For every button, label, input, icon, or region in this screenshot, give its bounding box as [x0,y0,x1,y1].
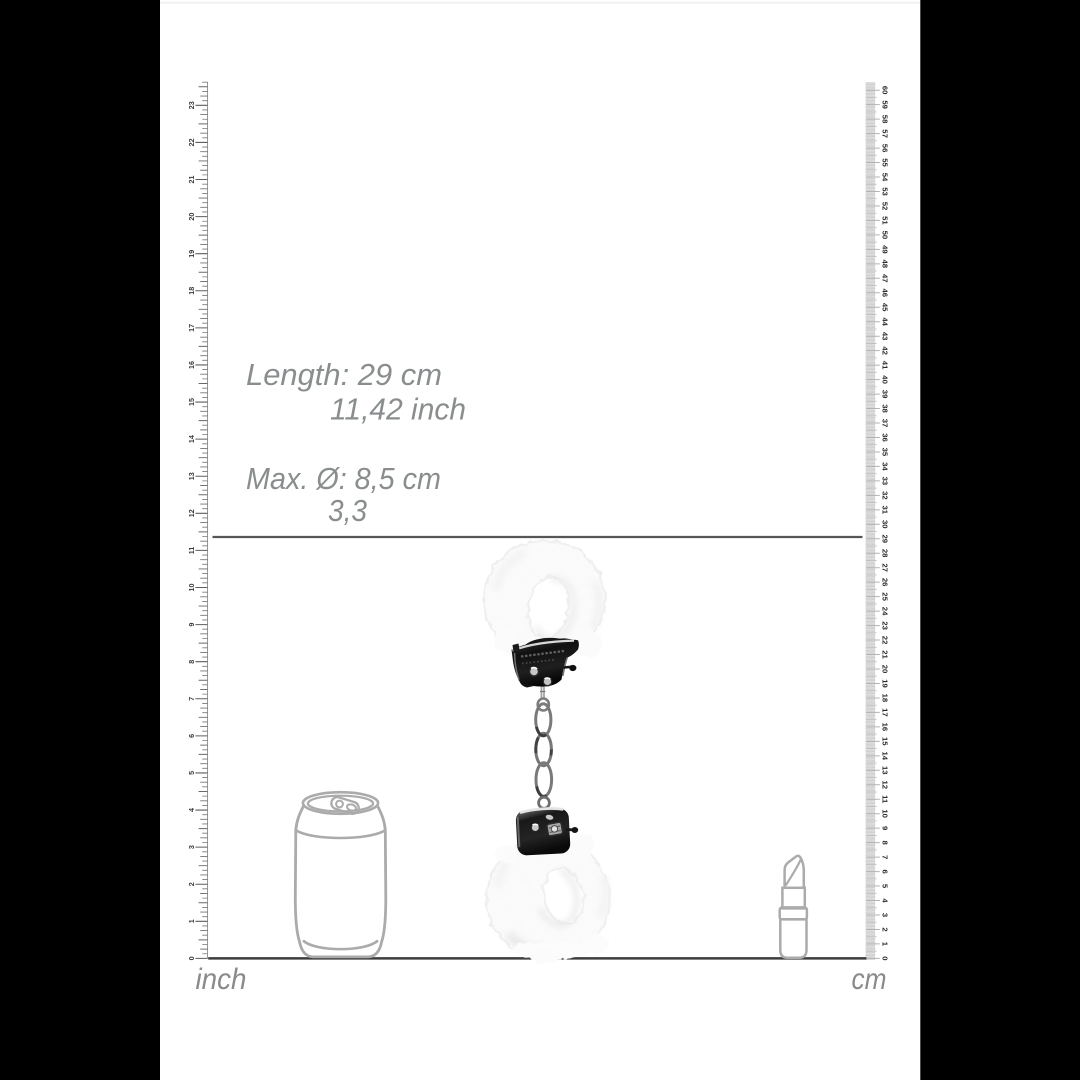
svg-text:17: 17 [880,708,889,717]
svg-text:35: 35 [880,448,889,457]
svg-text:30: 30 [880,520,889,529]
svg-text:56: 56 [880,144,889,153]
svg-text:8: 8 [187,660,196,664]
svg-text:0: 0 [880,956,889,960]
svg-text:20: 20 [880,665,889,674]
svg-text:36: 36 [880,433,889,442]
svg-text:31: 31 [880,506,889,515]
svg-text:41: 41 [880,361,889,370]
svg-text:11: 11 [880,795,889,804]
svg-text:16: 16 [187,361,196,369]
svg-text:47: 47 [880,274,889,283]
svg-text:7: 7 [187,697,196,701]
svg-text:15: 15 [187,398,196,406]
svg-text:23: 23 [880,621,889,630]
svg-text:21: 21 [187,176,196,184]
svg-text:1: 1 [880,942,889,947]
svg-text:58: 58 [880,115,889,124]
svg-text:12: 12 [187,509,196,517]
svg-text:3,3: 3,3 [328,494,367,528]
svg-text:10: 10 [187,584,196,592]
svg-text:19: 19 [880,679,889,688]
svg-text:23: 23 [187,101,196,109]
svg-text:11: 11 [187,547,196,555]
svg-text:22: 22 [187,138,196,146]
svg-text:60: 60 [880,86,889,95]
svg-text:37: 37 [880,419,889,428]
svg-text:32: 32 [880,491,889,500]
svg-text:25: 25 [880,592,889,601]
svg-text:52: 52 [880,202,889,211]
svg-text:Length: 29 cm: Length: 29 cm [246,358,442,392]
svg-text:44: 44 [880,317,889,326]
svg-text:13: 13 [880,766,889,775]
svg-text:21: 21 [880,650,889,659]
svg-text:16: 16 [880,723,889,732]
svg-text:2: 2 [187,882,196,886]
svg-text:3: 3 [880,913,889,917]
svg-text:40: 40 [880,375,889,384]
svg-text:29: 29 [880,535,889,544]
svg-text:18: 18 [880,694,889,703]
svg-text:28: 28 [880,549,889,558]
svg-text:22: 22 [880,636,889,645]
svg-text:55: 55 [880,158,889,167]
svg-text:54: 54 [880,173,889,182]
svg-text:49: 49 [880,245,889,254]
svg-text:33: 33 [880,477,889,486]
svg-text:26: 26 [880,578,889,587]
svg-text:inch: inch [196,963,247,996]
svg-text:11,42 inch: 11,42 inch [330,393,466,427]
svg-text:cm: cm [852,963,887,996]
svg-text:0: 0 [187,956,196,960]
svg-text:Max. Ø: 8,5 cm: Max. Ø: 8,5 cm [246,462,441,496]
svg-text:24: 24 [880,607,889,616]
svg-text:3: 3 [187,845,196,849]
svg-text:14: 14 [187,435,196,443]
svg-text:38: 38 [880,404,889,413]
svg-text:53: 53 [880,187,889,196]
svg-text:48: 48 [880,260,889,269]
svg-text:6: 6 [187,734,196,738]
svg-text:20: 20 [187,213,196,221]
svg-text:50: 50 [880,231,889,240]
svg-text:42: 42 [880,346,889,355]
svg-text:45: 45 [880,303,889,312]
svg-text:34: 34 [880,462,889,471]
svg-text:4: 4 [880,898,889,903]
svg-text:2: 2 [880,927,889,931]
svg-text:4: 4 [187,808,196,812]
svg-text:27: 27 [880,563,889,572]
svg-text:39: 39 [880,390,889,399]
svg-text:6: 6 [880,869,889,873]
svg-text:18: 18 [187,287,196,295]
svg-text:7: 7 [880,855,889,859]
svg-text:46: 46 [880,289,889,298]
svg-text:59: 59 [880,100,889,109]
svg-text:15: 15 [880,737,889,746]
svg-text:13: 13 [187,472,196,480]
svg-text:9: 9 [187,623,196,627]
svg-text:10: 10 [880,809,889,818]
svg-text:12: 12 [880,781,889,790]
svg-text:5: 5 [187,771,196,775]
svg-text:14: 14 [880,752,889,761]
svg-text:8: 8 [880,840,889,845]
svg-text:1: 1 [187,919,196,923]
svg-text:57: 57 [880,129,889,138]
svg-text:43: 43 [880,332,889,341]
svg-text:17: 17 [187,324,196,332]
svg-text:51: 51 [880,216,889,225]
svg-text:9: 9 [880,826,889,830]
svg-text:19: 19 [187,250,196,258]
svg-text:5: 5 [880,884,889,889]
